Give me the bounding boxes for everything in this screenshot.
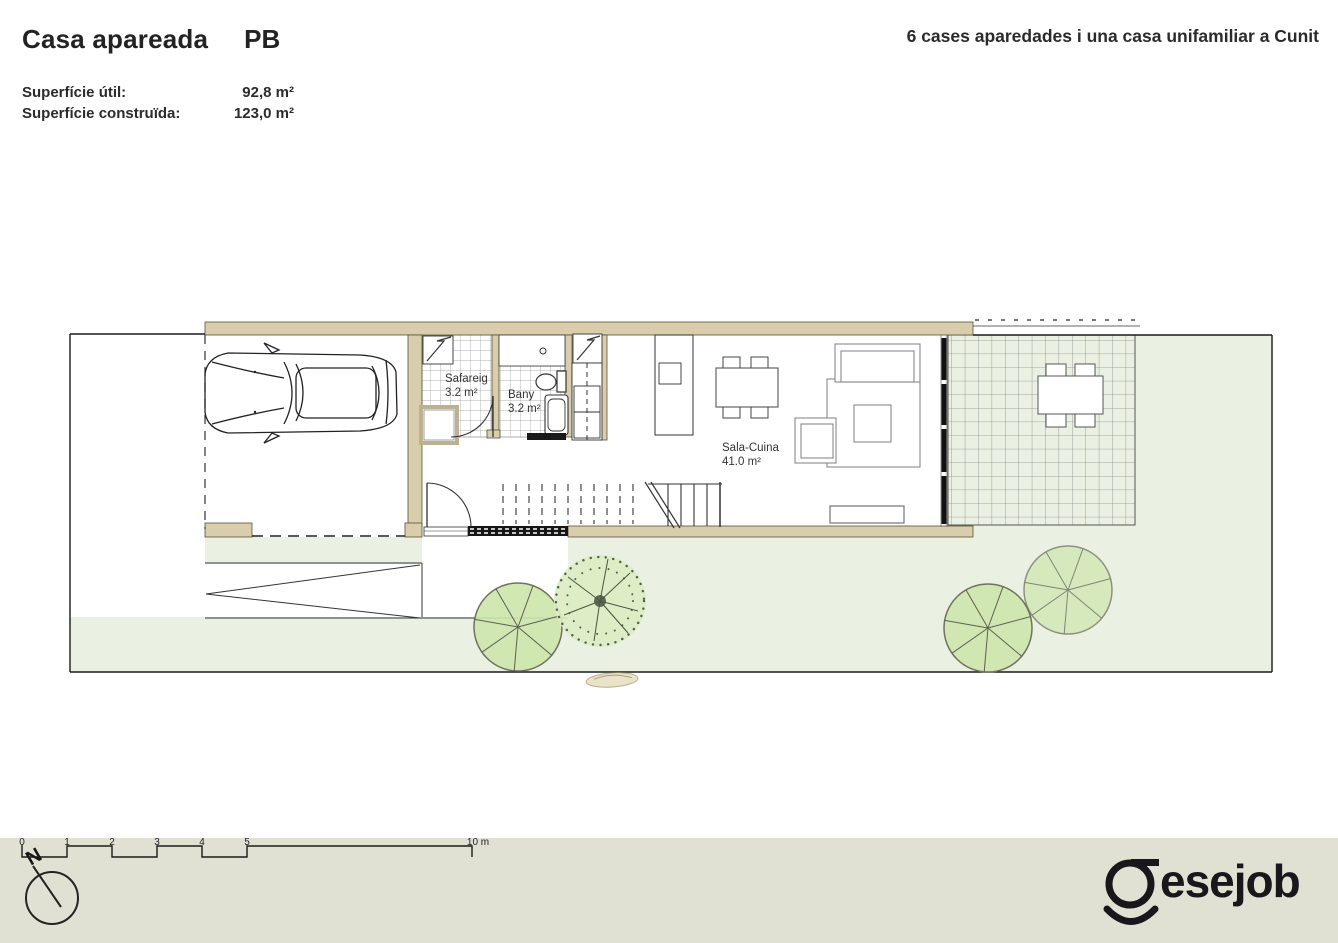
room-label-safareig: Safareig 3.2 m² bbox=[445, 372, 488, 400]
entrance-grate bbox=[468, 526, 568, 536]
project-title: 6 cases aparedades i una casa unifamilia… bbox=[907, 26, 1319, 47]
header: Casa apareada PB bbox=[22, 24, 280, 55]
scale-tick-label: 5 bbox=[244, 837, 250, 848]
logo-text: esejob bbox=[1160, 854, 1300, 908]
room-area: 41.0 m² bbox=[722, 455, 779, 469]
room-name: Sala-Cuina bbox=[722, 441, 779, 455]
shrub-icon bbox=[586, 671, 639, 689]
floor-code: PB bbox=[244, 24, 280, 55]
staircase bbox=[503, 482, 722, 528]
room-label-sala-cuina: Sala-Cuina 41.0 m² bbox=[722, 441, 779, 469]
room-name: Bany bbox=[508, 388, 541, 402]
room-label-bany: Bany 3.2 m² bbox=[508, 388, 541, 416]
tree-icon bbox=[944, 584, 1032, 672]
stat-value: 92,8 m² bbox=[242, 82, 294, 103]
scale-tick-label: 4 bbox=[199, 837, 205, 848]
room-area: 3.2 m² bbox=[508, 402, 541, 416]
glass-facade bbox=[941, 335, 947, 527]
stat-value: 123,0 m² bbox=[234, 103, 294, 124]
page-title: Casa apareada bbox=[22, 24, 208, 55]
tree-icon bbox=[474, 583, 562, 671]
tree-icon bbox=[554, 555, 646, 647]
stat-row: Superfície construïda: 123,0 m² bbox=[22, 103, 294, 124]
scale-end-label: 10 m bbox=[467, 837, 489, 848]
stat-row: Superfície útil: 92,8 m² bbox=[22, 82, 294, 103]
scale-tick-label: 1 bbox=[64, 837, 70, 848]
stat-label: Superfície útil: bbox=[22, 82, 242, 103]
tree-icon bbox=[1024, 546, 1112, 634]
dining-table bbox=[716, 357, 778, 418]
surface-stats: Superfície útil: 92,8 m² Superfície cons… bbox=[22, 82, 294, 124]
floor-plan-sheet: Casa apareada PB Superfície útil: 92,8 m… bbox=[0, 0, 1338, 943]
room-name: Safareig bbox=[445, 372, 488, 386]
stat-label: Superfície construïda: bbox=[22, 103, 234, 124]
floor-plan-svg bbox=[0, 0, 1338, 943]
car-top-view-icon bbox=[205, 343, 397, 443]
room-area: 3.2 m² bbox=[445, 386, 488, 400]
pergola-edge bbox=[973, 320, 1140, 326]
scale-tick-label: 3 bbox=[154, 837, 160, 848]
entrance-door bbox=[424, 483, 568, 536]
cabinet-column bbox=[572, 363, 602, 440]
footer-band bbox=[0, 838, 1338, 943]
scale-tick-label: 0 bbox=[19, 837, 25, 848]
terrace bbox=[948, 335, 1135, 525]
sofa-set bbox=[795, 344, 920, 523]
garage bbox=[205, 335, 405, 536]
kitchen-island bbox=[655, 335, 693, 435]
scale-tick-label: 2 bbox=[109, 837, 115, 848]
